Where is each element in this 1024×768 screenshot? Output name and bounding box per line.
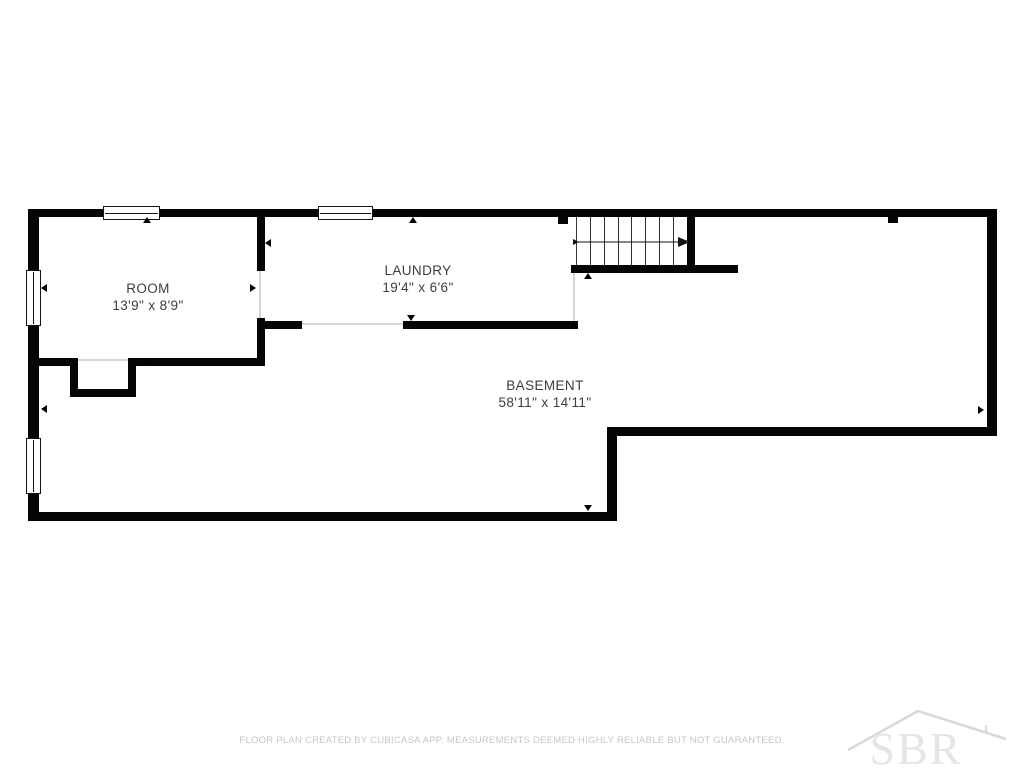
window-top-room — [103, 206, 160, 220]
wall-stair-bottom — [571, 265, 738, 273]
sbr-text: SBR — [870, 723, 963, 768]
window-top-laundry — [318, 206, 373, 220]
opening-stair-passage — [573, 273, 575, 321]
wall-step — [607, 427, 617, 521]
room-name: LAUNDRY — [382, 262, 453, 279]
floor-plan: ROOM 13'9" x 8'9" LAUNDRY 19'4" x 6'6" B… — [0, 0, 1024, 768]
wall-bottom-right — [607, 427, 997, 436]
sbr-watermark: SBR — [840, 698, 1024, 768]
opening-alcove — [78, 359, 128, 361]
room-dimensions: 58'11" x 14'11" — [498, 394, 591, 411]
door-tick-icon — [584, 273, 592, 279]
basement-label: BASEMENT 58'11" x 14'11" — [498, 377, 591, 411]
door-tick-icon — [250, 284, 256, 292]
room-dimensions: 19'4" x 6'6" — [382, 279, 453, 296]
stair-direction-arrow — [565, 230, 695, 254]
wall-laundry-bottom-east — [403, 321, 578, 329]
door-tick-icon — [41, 284, 47, 292]
wall-alcove-bottom — [70, 389, 136, 397]
wall-bottom-left — [28, 512, 617, 521]
door-tick-icon — [265, 239, 271, 247]
door-tick-icon — [41, 405, 47, 413]
door-tick-icon — [584, 505, 592, 511]
door-tick-icon — [978, 406, 984, 414]
room-dimensions: 13'9" x 8'9" — [112, 297, 183, 314]
door-tick-icon — [143, 217, 151, 223]
wall-right — [987, 209, 997, 436]
door-frame-notch — [888, 217, 898, 223]
room-label: ROOM 13'9" x 8'9" — [112, 280, 183, 314]
opening-laundry — [302, 323, 403, 325]
wall-room-right-upper — [257, 217, 265, 271]
window-left-upper — [26, 270, 41, 326]
opening-room-door — [259, 271, 261, 318]
wall-laundry-bottom-west — [257, 321, 302, 329]
laundry-label: LAUNDRY 19'4" x 6'6" — [382, 262, 453, 296]
wall-top — [28, 209, 997, 217]
room-name: BASEMENT — [498, 377, 591, 394]
door-frame-notch — [558, 217, 568, 224]
door-tick-icon — [409, 217, 417, 223]
room-name: ROOM — [112, 280, 183, 297]
window-left-lower — [26, 438, 41, 494]
door-tick-icon — [144, 358, 152, 364]
door-tick-icon — [407, 315, 415, 321]
